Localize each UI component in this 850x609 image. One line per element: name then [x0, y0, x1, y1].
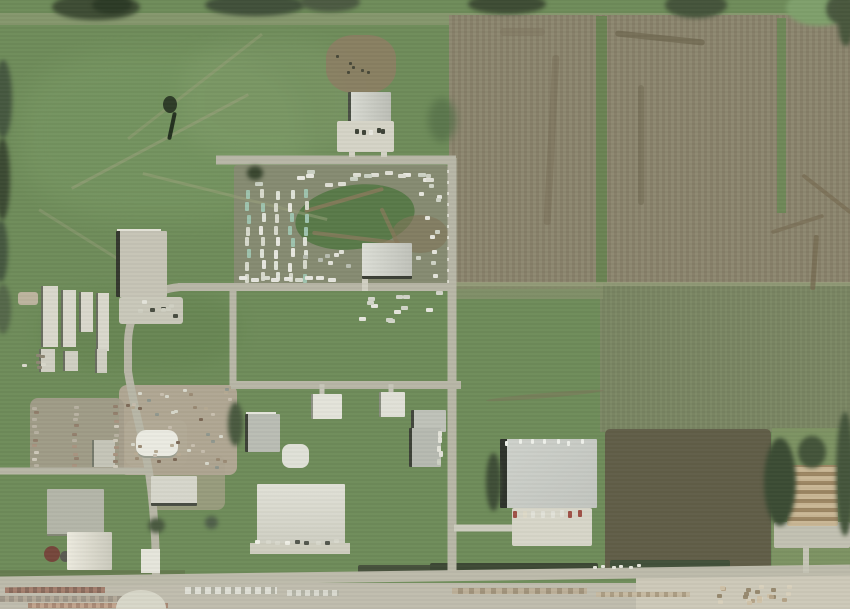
satellite-image [0, 0, 850, 609]
photo-grain [0, 0, 850, 609]
